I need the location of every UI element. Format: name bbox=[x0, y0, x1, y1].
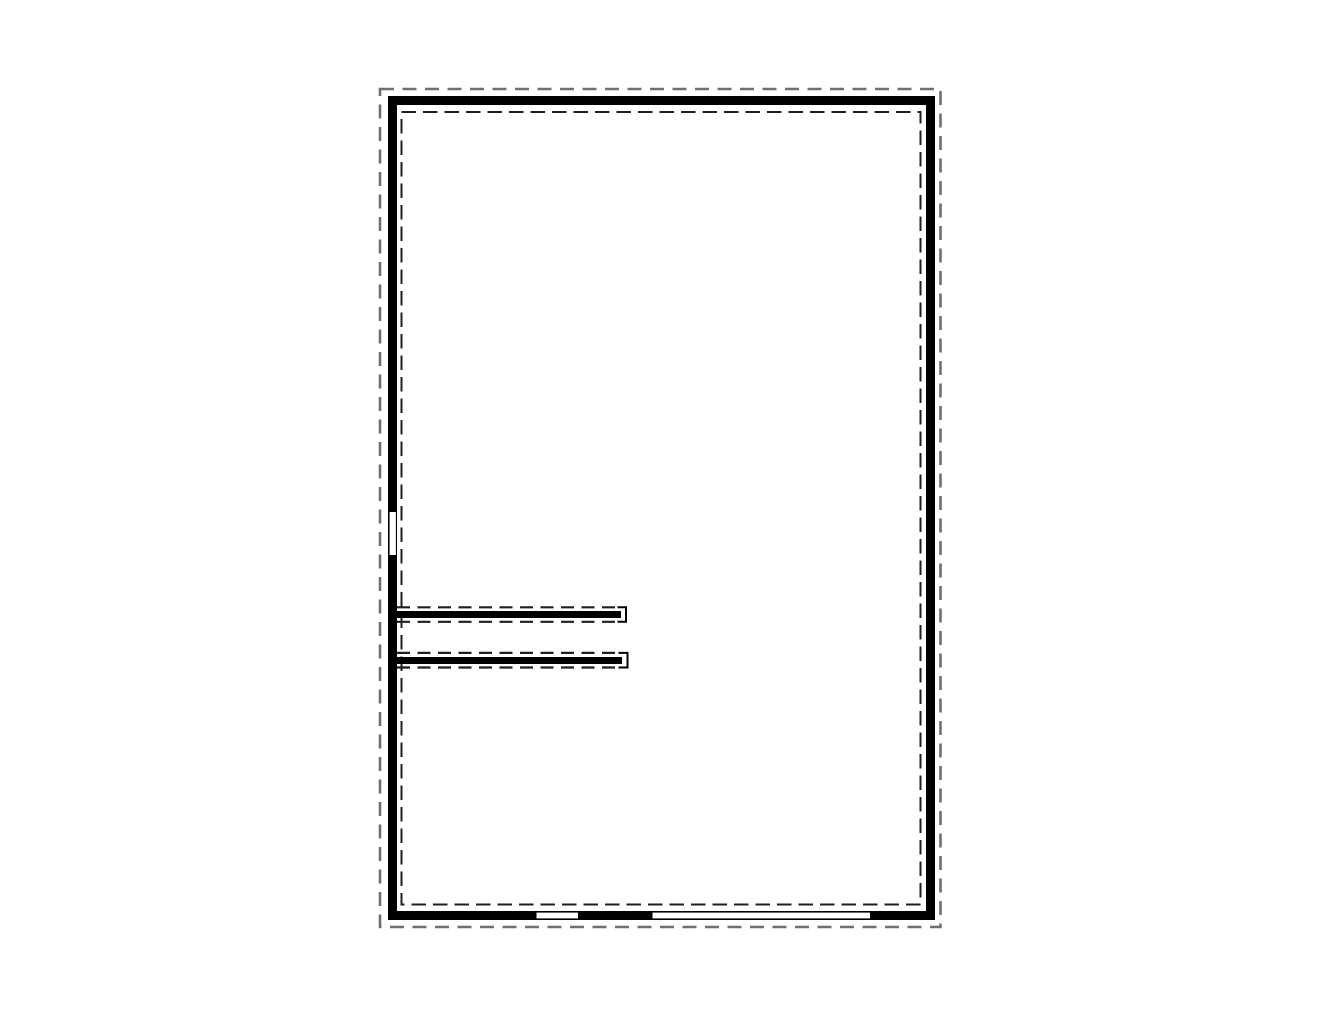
window-bottom-large bbox=[653, 913, 871, 919]
exterior-wall bbox=[393, 101, 931, 916]
interior-wall-lower bbox=[392, 657, 622, 664]
outer-dashed-boundary bbox=[380, 89, 941, 927]
floor-plan-canvas bbox=[0, 0, 1320, 1020]
inner-dashed-boundary bbox=[402, 112, 921, 905]
window-left-wall bbox=[390, 512, 396, 555]
interior-wall-upper-group bbox=[392, 607, 626, 622]
floor-plan-drawing bbox=[0, 0, 1320, 1020]
window-bottom-small bbox=[537, 913, 579, 919]
interior-wall-upper bbox=[392, 611, 621, 618]
interior-wall-lower-group bbox=[392, 653, 628, 668]
